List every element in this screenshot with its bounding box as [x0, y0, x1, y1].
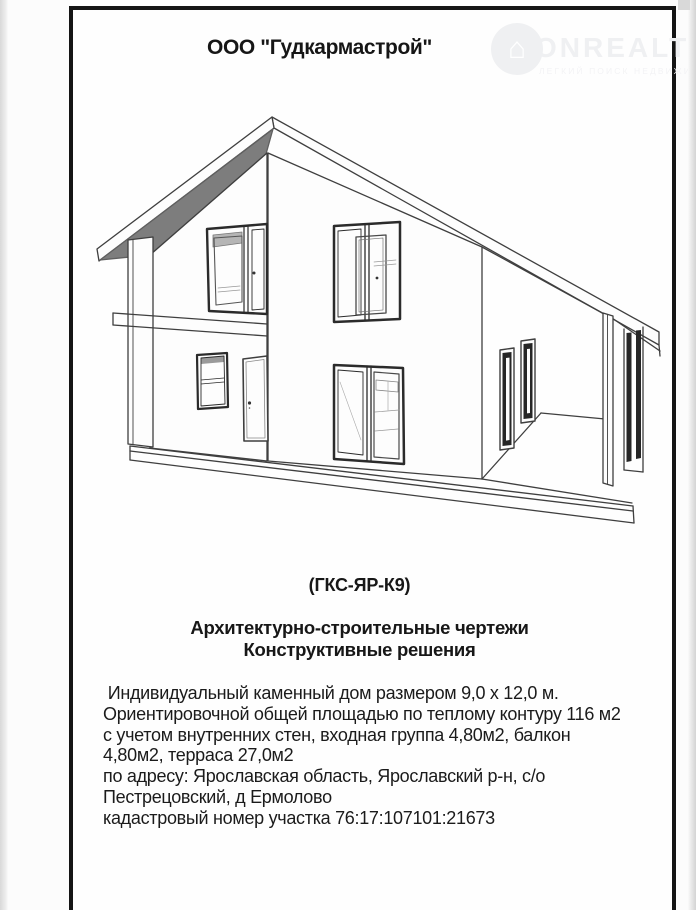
page-sheet: ООО "Гудкармастрой" ⌂ ONREALT ЛЕГКИЙ ПОИ…	[69, 6, 676, 910]
description-line: 4,80м2, терраса 27,0м2	[103, 745, 648, 766]
description-paragraph: Индивидуальный каменный дом размером 9,0…	[103, 683, 648, 829]
description-line: Ориентировочной общей площадью по теплом…	[103, 704, 648, 725]
photo-left-edge	[0, 0, 8, 910]
project-code: (ГКС-ЯР-К9)	[60, 575, 659, 596]
onrealt-tagline: ЛЕГКИЙ ПОИСК НЕДВИЖИМОСТИ	[539, 66, 696, 76]
description-line: кадастровый номер участка 76:17:107101:2…	[103, 808, 648, 829]
house-glyph: ⌂	[508, 32, 526, 66]
description-line: с учетом внутренних стен, входная группа…	[103, 725, 648, 746]
photo-corner-notch	[678, 0, 690, 10]
photo-right-edge	[688, 0, 696, 910]
description-line: Индивидуальный каменный дом размером 9,0…	[103, 683, 648, 704]
description-line: по адресу: Ярославская область, Ярославс…	[103, 766, 648, 787]
scanned-document-photo: ООО "Гудкармастрой" ⌂ ONREALT ЛЕГКИЙ ПОИ…	[0, 0, 696, 910]
onrealt-brand-text: ONREALT	[535, 32, 689, 64]
heading-structural-solutions: Конструктивные решения	[60, 639, 659, 661]
description-line: Пестрецовский, д Ермолово	[103, 787, 648, 808]
heading-architectural-drawings: Архитектурно-строительные чертежи	[60, 617, 659, 639]
